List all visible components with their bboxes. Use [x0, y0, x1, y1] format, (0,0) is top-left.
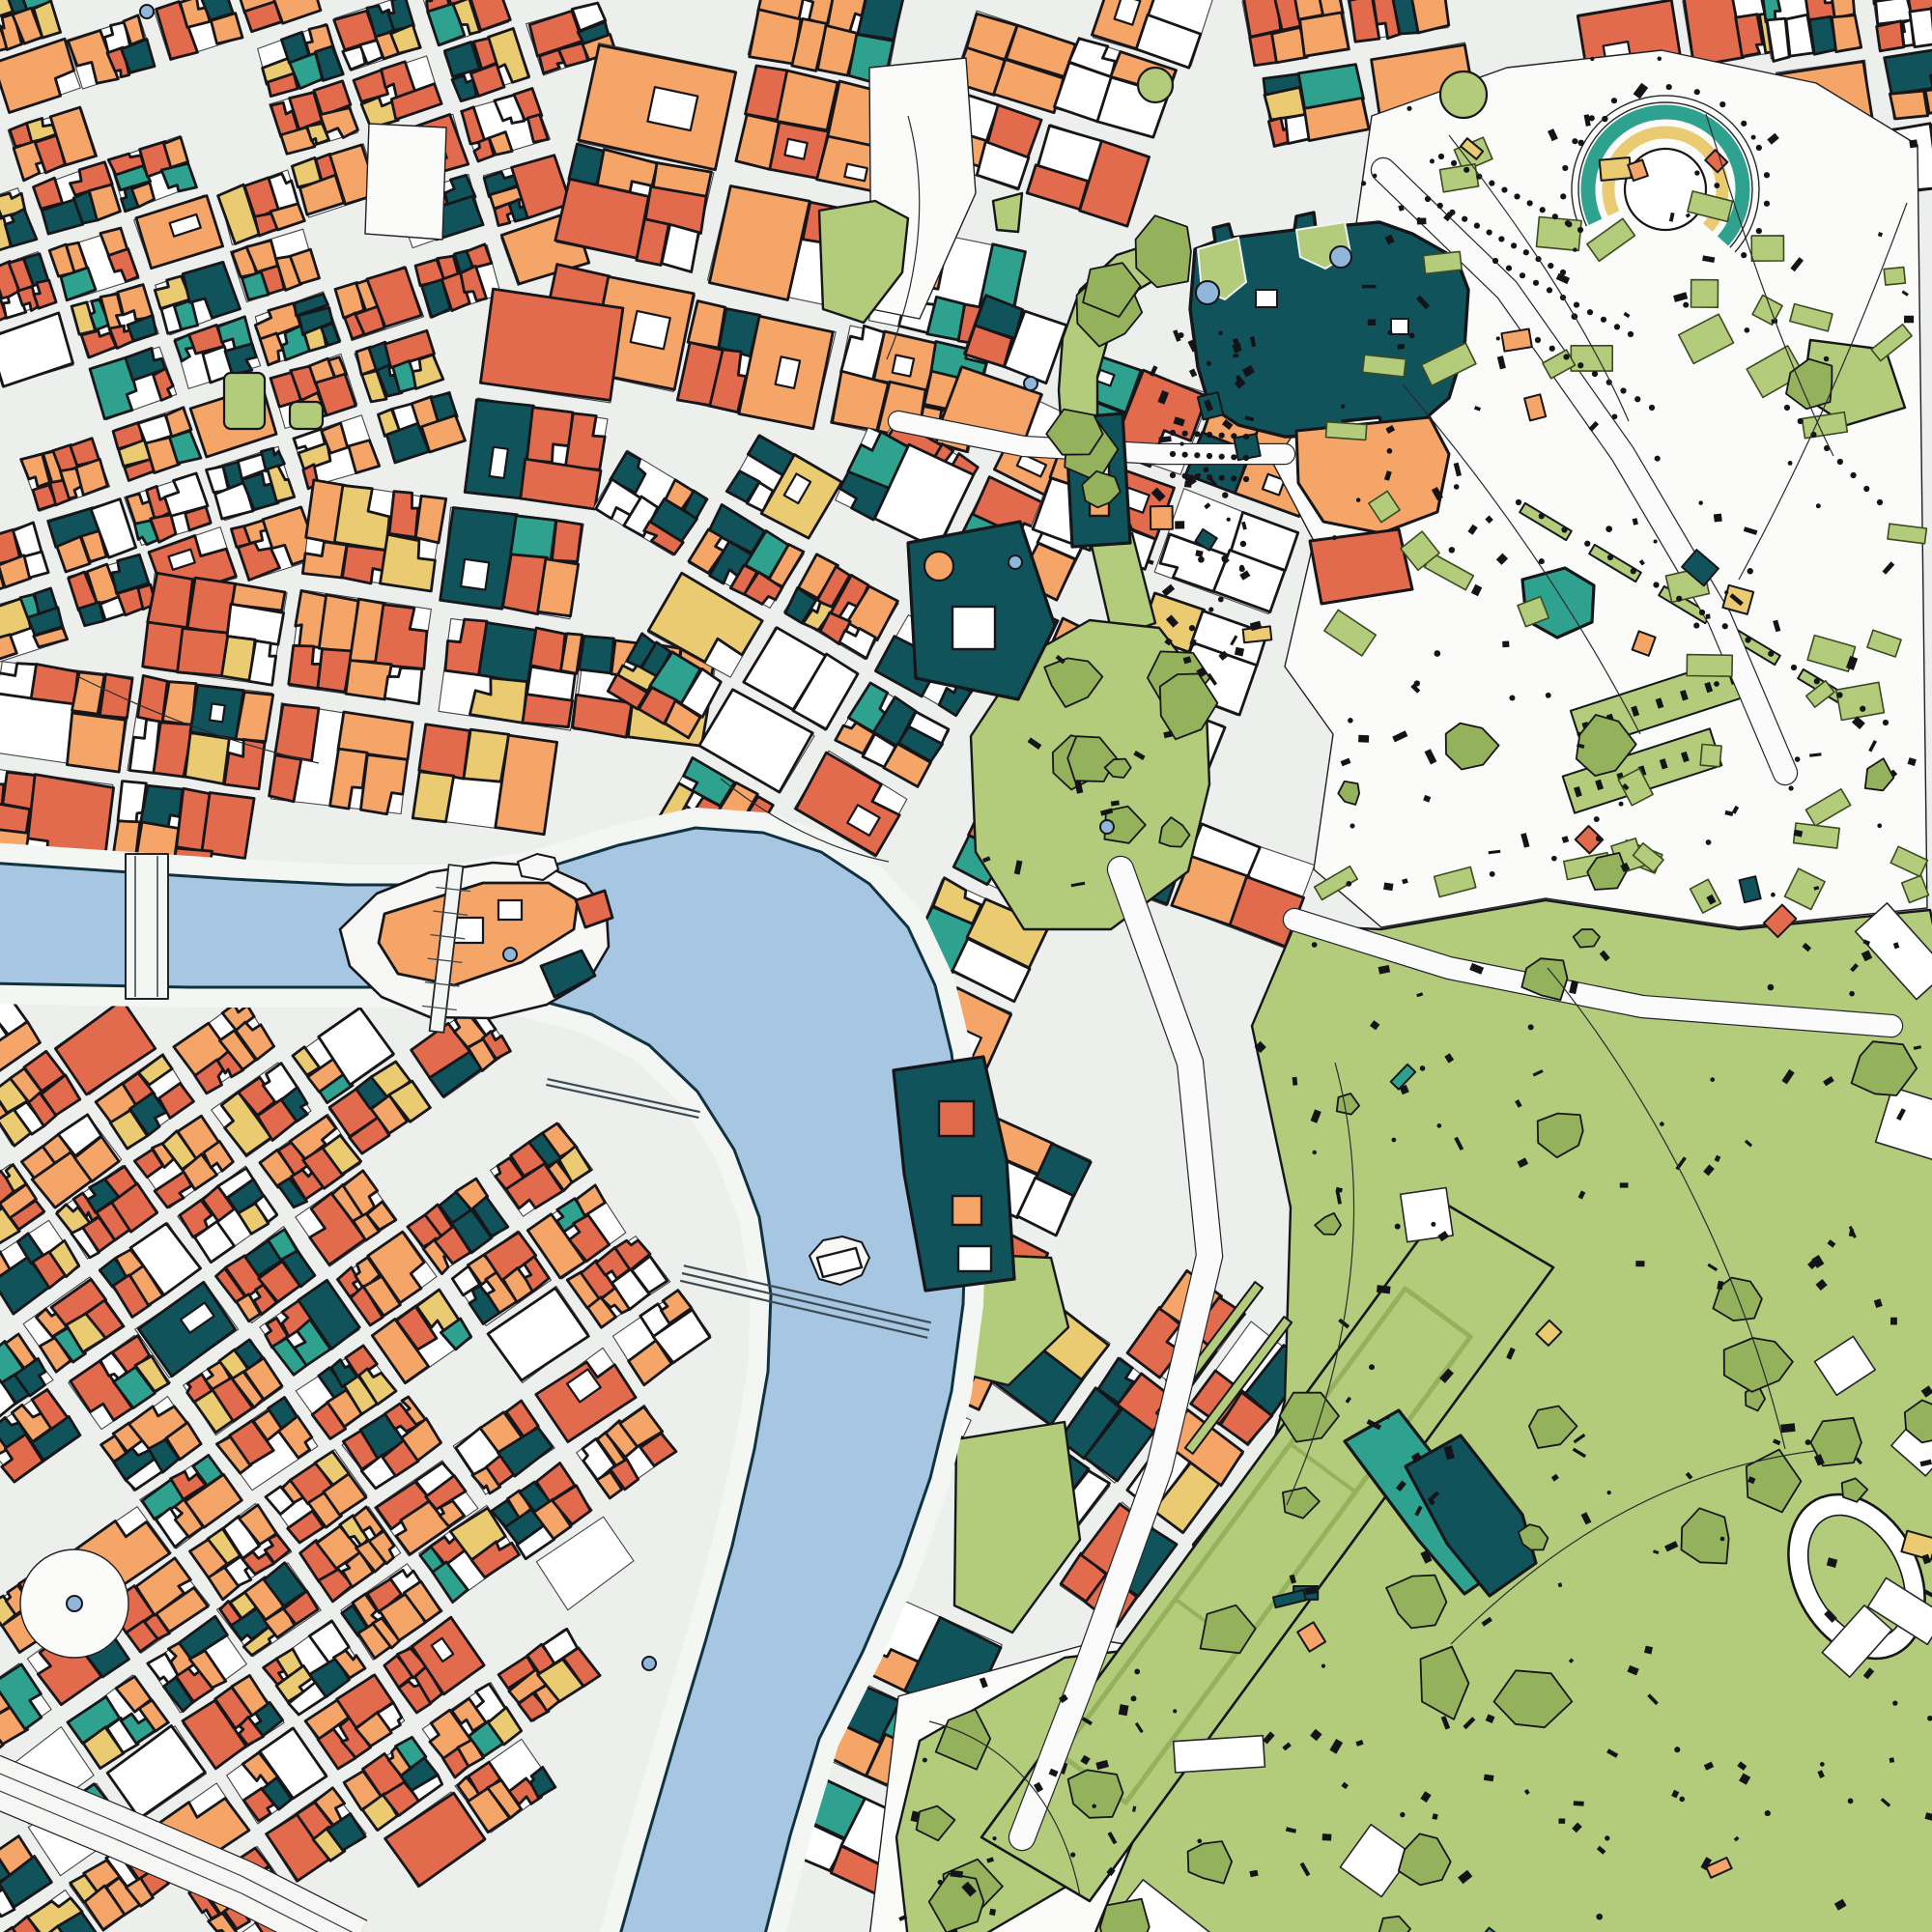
tree-dot: [1369, 1364, 1375, 1370]
tree-dot: [1614, 324, 1620, 329]
tree-dot: [1548, 263, 1553, 269]
tree-dot: [1592, 371, 1598, 377]
tree-dot: [938, 1880, 943, 1885]
tree-dot: [1170, 430, 1176, 436]
building: [178, 629, 229, 676]
tree-dot: [1231, 475, 1236, 481]
tree-dot: [1449, 547, 1456, 554]
tree-dot: [1756, 145, 1762, 151]
tree-dot: [1131, 1695, 1137, 1701]
tree-dot: [1239, 566, 1245, 572]
courtyard: [647, 87, 697, 130]
tree-dot: [1454, 484, 1460, 490]
tree-dot: [1795, 756, 1801, 762]
tree-dot: [1204, 467, 1209, 472]
tree-dot: [1848, 1799, 1854, 1804]
fountain: [503, 948, 517, 961]
building: [419, 724, 470, 779]
tree-dot: [1771, 893, 1776, 897]
castle-annex: [1310, 529, 1412, 604]
micro-building: [989, 1909, 996, 1916]
tree-dot: [1698, 500, 1703, 505]
castle-courtyard: [1391, 319, 1408, 334]
building: [662, 224, 698, 271]
tree-dot: [1784, 405, 1790, 411]
building: [1910, 9, 1932, 47]
tree-dot: [1877, 499, 1883, 505]
tree-dot: [1606, 1491, 1610, 1494]
tree-dot: [1745, 637, 1750, 642]
garden-plot: [1691, 280, 1719, 308]
garden-plot: [1537, 217, 1582, 251]
tree-dot: [1420, 1065, 1426, 1071]
micro-building: [1714, 514, 1722, 523]
micro-building: [1358, 735, 1369, 743]
garden-plot: [1687, 655, 1732, 677]
landmark-courtyard: [958, 1246, 991, 1271]
tree-dot: [1883, 720, 1889, 725]
micro-building: [1706, 614, 1711, 619]
tree-dot: [1231, 433, 1236, 439]
building: [185, 733, 230, 784]
fountain: [642, 1657, 656, 1670]
tree-dot: [1764, 201, 1770, 207]
tree-dot: [1437, 203, 1443, 209]
tree-dot: [1601, 317, 1606, 323]
tree-dot: [1560, 270, 1566, 275]
tree-dot: [1501, 186, 1507, 192]
tree-dot: [1474, 223, 1480, 229]
tree-dot: [1179, 332, 1184, 338]
tree-dot: [1431, 1222, 1435, 1227]
tree-dot: [1194, 473, 1200, 479]
tree-dot: [1765, 1810, 1771, 1816]
tree-dot: [1462, 216, 1467, 222]
tree-dot: [1219, 454, 1225, 460]
tree-dot: [1756, 228, 1762, 234]
micro-building: [1377, 1285, 1391, 1293]
tree-dot: [1430, 158, 1435, 163]
tree-dot: [1619, 802, 1624, 807]
micro-building: [1889, 1757, 1895, 1763]
tree-dot: [1134, 1669, 1140, 1675]
tree-dot: [1498, 236, 1504, 241]
plaza-zone: [365, 124, 446, 240]
fountain: [1024, 377, 1037, 390]
building: [1411, 0, 1449, 33]
tree-dot: [1653, 582, 1659, 587]
tree-dot: [1218, 331, 1222, 335]
courtyard: [461, 559, 489, 590]
park: [993, 193, 1022, 232]
tree-dot: [1437, 1123, 1442, 1128]
tree-dot: [1596, 1914, 1603, 1920]
tree-dot: [1487, 229, 1492, 235]
tree-dot: [1589, 115, 1595, 121]
garden-plot: [1836, 682, 1885, 720]
tree-dot: [1768, 984, 1775, 991]
tree-dot: [1511, 242, 1517, 248]
tree-dot: [1820, 1762, 1825, 1767]
tree-dot: [1321, 1664, 1325, 1668]
tree-dot: [1451, 160, 1457, 166]
tree-dot: [1706, 839, 1712, 845]
tree-dot: [1197, 1839, 1202, 1844]
tree-dot: [1182, 473, 1188, 479]
island-courtyard: [498, 900, 522, 920]
tree-dot: [1540, 207, 1546, 213]
tree-dot: [1207, 361, 1211, 366]
tree-dot: [1400, 1812, 1405, 1817]
building: [523, 695, 573, 727]
tree-dot: [1198, 556, 1205, 563]
tree-dot: [1814, 678, 1820, 684]
building: [31, 665, 77, 704]
tree-dot: [1182, 452, 1188, 458]
park-square: [224, 373, 265, 429]
tree-dot: [1533, 280, 1539, 286]
tree-dot: [1768, 651, 1774, 657]
tree-dot: [1764, 172, 1770, 178]
tree-dot: [1227, 518, 1231, 522]
tree-dot: [1438, 154, 1444, 159]
tree-dot: [1520, 272, 1525, 278]
courtyard: [631, 311, 670, 349]
tree-dot: [1194, 452, 1200, 458]
tree-dot: [1243, 434, 1249, 440]
tree-dot: [1719, 101, 1725, 107]
tree-dot: [1218, 597, 1224, 603]
tree-dot: [1788, 461, 1793, 466]
tree-dot: [1634, 396, 1640, 402]
tree-dot: [1414, 680, 1420, 686]
tree-dot: [1805, 1439, 1811, 1445]
tree-dot: [1429, 1499, 1435, 1505]
tree-dot: [1654, 540, 1658, 544]
building: [67, 713, 125, 772]
small-building: [1501, 329, 1531, 352]
park-circle: [1138, 68, 1173, 102]
courtyard: [784, 139, 807, 159]
tree-dot: [1527, 200, 1533, 206]
tree-dot: [1566, 221, 1572, 227]
landmark-courtyard: [952, 607, 995, 649]
courtyard: [210, 703, 225, 722]
tree-dot: [1092, 1804, 1095, 1807]
micro-building: [1620, 1182, 1629, 1187]
tree-dot: [1523, 249, 1529, 255]
tree-dot: [1573, 247, 1577, 251]
tree-dot: [1860, 706, 1865, 712]
building: [1885, 49, 1932, 95]
tree-dot: [1173, 1709, 1177, 1713]
tree-dot: [1385, 1415, 1389, 1419]
tree-dot: [1207, 453, 1212, 459]
tree-dot: [1539, 513, 1545, 519]
tree-dot: [1693, 623, 1699, 629]
garden-plot: [1751, 236, 1783, 261]
garden-plot: [1571, 346, 1612, 371]
tree-dot: [1547, 287, 1552, 293]
courtyard: [893, 355, 914, 377]
tree-dot: [1584, 541, 1590, 547]
tree-dot: [1816, 503, 1821, 508]
tree-dot: [1373, 174, 1378, 179]
tree-dot: [1070, 1852, 1075, 1857]
tree-dot: [1850, 472, 1856, 478]
tree-dot: [1395, 1224, 1401, 1230]
building: [1832, 15, 1861, 52]
building: [1300, 13, 1350, 56]
tree-dot: [1546, 693, 1551, 698]
tree-dot: [1607, 554, 1613, 560]
tree-dot: [1560, 193, 1566, 199]
tree-dot: [1676, 596, 1682, 602]
tree-dot: [1490, 871, 1495, 877]
tree-dot: [1243, 476, 1249, 482]
tree-dot: [1348, 718, 1353, 724]
tree-dot: [1207, 474, 1212, 480]
tree-dot: [1649, 405, 1655, 411]
tree-dot: [1406, 106, 1411, 111]
building: [538, 559, 579, 616]
micro-building: [1574, 1801, 1584, 1806]
landmark-detail: [924, 552, 953, 581]
tree-dot: [1694, 170, 1699, 175]
tree-dot: [1496, 336, 1500, 340]
courtyard: [844, 164, 867, 182]
tree-dot: [1824, 356, 1830, 362]
tree-dot: [1551, 856, 1557, 862]
tree-dot: [1219, 433, 1225, 439]
tree-dot: [1620, 387, 1626, 393]
building: [579, 637, 613, 673]
tree-dot: [1789, 785, 1794, 790]
tree-dot: [1590, 57, 1594, 61]
tree-dot: [1170, 472, 1176, 478]
tree-dot: [1356, 497, 1361, 502]
bridge-deck: [126, 854, 168, 999]
tree-dot: [1492, 258, 1498, 264]
tree-dot: [1747, 568, 1753, 574]
tree-dot: [1535, 337, 1541, 343]
fountain: [140, 5, 154, 18]
tree-dot: [1189, 625, 1195, 631]
fountain: [1009, 555, 1022, 569]
micro-building: [1368, 319, 1377, 326]
tree-dot: [1341, 404, 1345, 408]
building: [148, 573, 193, 629]
tree-dot: [923, 1758, 927, 1763]
landmark-courtyard: [952, 1196, 981, 1225]
tree-dot: [1552, 213, 1558, 219]
tree-dot: [1587, 309, 1593, 315]
tree-dot: [1837, 459, 1843, 465]
micro-building: [1397, 344, 1405, 350]
tree-dot: [1449, 210, 1455, 215]
tree-dot: [1720, 1537, 1725, 1542]
castle-dome-pool: [1196, 281, 1219, 304]
building: [275, 704, 319, 760]
tree-dot: [1194, 431, 1200, 437]
tree-dot: [1240, 541, 1246, 547]
tree-dot: [1658, 57, 1662, 62]
tree-dot: [1724, 590, 1728, 594]
tree-dot: [1745, 327, 1750, 333]
tree-dot: [1563, 354, 1569, 359]
micro-building: [1322, 1833, 1332, 1841]
tree-dot: [1182, 431, 1188, 437]
micro-building: [1293, 1077, 1298, 1086]
building: [202, 793, 254, 859]
micro-building: [1362, 285, 1376, 288]
tree-dot: [1574, 302, 1579, 308]
tree-dot: [1710, 1077, 1715, 1082]
tree-dot: [1596, 836, 1602, 841]
micro-building: [1635, 1261, 1644, 1266]
tree-dot: [1798, 418, 1804, 424]
building: [777, 71, 838, 130]
tree-dot: [1562, 165, 1568, 171]
tree-dot: [1313, 1151, 1317, 1154]
tree-dot: [1602, 116, 1607, 122]
tree-dot: [1674, 1747, 1680, 1752]
tree-dot: [1863, 486, 1869, 492]
city-map-poster: [0, 0, 1932, 1932]
tree-dot: [1605, 526, 1612, 532]
tree-dot: [1741, 252, 1747, 258]
tree-dot: [1416, 217, 1421, 222]
castle-annex: [1296, 417, 1449, 533]
tree-dot: [1577, 732, 1580, 736]
tree-dot: [1207, 432, 1212, 438]
tree-dot: [1463, 167, 1469, 173]
tree-dot: [1179, 441, 1183, 445]
tree-dot: [1637, 87, 1643, 93]
building: [479, 623, 536, 684]
tree-dot: [1506, 266, 1512, 271]
tree-dot: [1683, 302, 1689, 308]
micro-building: [1909, 139, 1918, 148]
tree-dot: [1751, 135, 1756, 140]
tree-dot: [1605, 1835, 1609, 1840]
tree-dot: [1612, 413, 1618, 419]
micro-building: [1175, 521, 1184, 528]
tree-dot: [1387, 448, 1393, 454]
tree-dot: [1361, 181, 1366, 185]
park-compound: [1174, 1736, 1265, 1773]
tree-dot: [1221, 555, 1227, 561]
tree-dot: [1694, 89, 1700, 95]
tree-dot: [1699, 610, 1705, 615]
tree-dot: [1514, 193, 1520, 199]
micro-building: [1558, 1818, 1565, 1824]
tree-dot: [1350, 823, 1354, 828]
city-map-svg: [0, 0, 1932, 1932]
building: [1877, 21, 1904, 51]
tree-dot: [1594, 816, 1600, 822]
garden-plot: [1884, 268, 1905, 286]
building: [1736, 14, 1763, 57]
tree-dot: [1679, 1797, 1685, 1803]
landmark-courtyard: [939, 1101, 974, 1136]
tree-dot: [1611, 98, 1617, 103]
tree-dot: [1666, 84, 1672, 90]
micro-building: [1904, 316, 1914, 324]
building: [412, 772, 453, 822]
tree-dot: [1392, 1138, 1397, 1143]
garden-plot: [1326, 422, 1367, 440]
micro-building: [1780, 1423, 1795, 1433]
tree-dot: [1434, 650, 1440, 657]
tree-dot: [1425, 196, 1431, 202]
tree-dot: [1655, 456, 1661, 462]
tree-dot: [1509, 695, 1515, 700]
tree-dot: [1660, 1122, 1664, 1126]
garden-plot: [1440, 164, 1479, 192]
small-building: [1600, 157, 1632, 181]
fountain: [67, 1596, 82, 1611]
tree-dot: [1222, 492, 1228, 497]
tree-dot: [1836, 692, 1842, 697]
tree-dot: [1892, 1700, 1897, 1705]
tree-dot: [1409, 332, 1415, 338]
micro-building: [1890, 1318, 1897, 1325]
tree-dot: [1346, 881, 1351, 887]
tree-dot: [1714, 681, 1719, 687]
garden-plot: [1424, 251, 1463, 273]
garden-plot: [1700, 745, 1721, 767]
tree-dot: [1312, 942, 1318, 948]
building: [99, 674, 132, 719]
tree-dot: [1791, 665, 1797, 670]
tree-dot: [1332, 535, 1337, 540]
tree-dot: [1219, 475, 1225, 481]
fountain: [1100, 820, 1114, 834]
tree-dot: [1231, 454, 1236, 460]
tree-dot: [1877, 823, 1882, 828]
tree-dot: [1489, 181, 1494, 186]
tree-dot: [1208, 607, 1213, 611]
tree-dot: [1631, 568, 1636, 574]
building: [480, 289, 623, 400]
tree-dot: [1572, 138, 1577, 144]
tree-dot: [1741, 121, 1747, 127]
micro-building: [1383, 883, 1393, 892]
garden-plot: [1363, 355, 1406, 377]
tree-dot: [992, 1836, 996, 1840]
park-circle: [1440, 71, 1487, 118]
micro-building: [1502, 641, 1509, 648]
micro-building: [1233, 354, 1238, 357]
building: [552, 521, 582, 562]
tree-dot: [1561, 526, 1567, 532]
courtyard: [490, 447, 508, 478]
tree-dot: [1243, 455, 1249, 461]
tree-dot: [1722, 623, 1728, 629]
tree-dot: [1577, 227, 1583, 233]
tree-dot: [1849, 991, 1855, 997]
tree-dot: [1528, 1024, 1534, 1030]
castle-dome-pool: [1330, 246, 1351, 268]
building: [530, 628, 565, 671]
tree-dot: [1170, 451, 1176, 457]
park-square: [290, 402, 323, 429]
tree-dot: [1549, 346, 1555, 352]
tree-dot: [1516, 499, 1521, 505]
tree-dot: [1714, 183, 1719, 188]
building: [1889, 91, 1927, 119]
